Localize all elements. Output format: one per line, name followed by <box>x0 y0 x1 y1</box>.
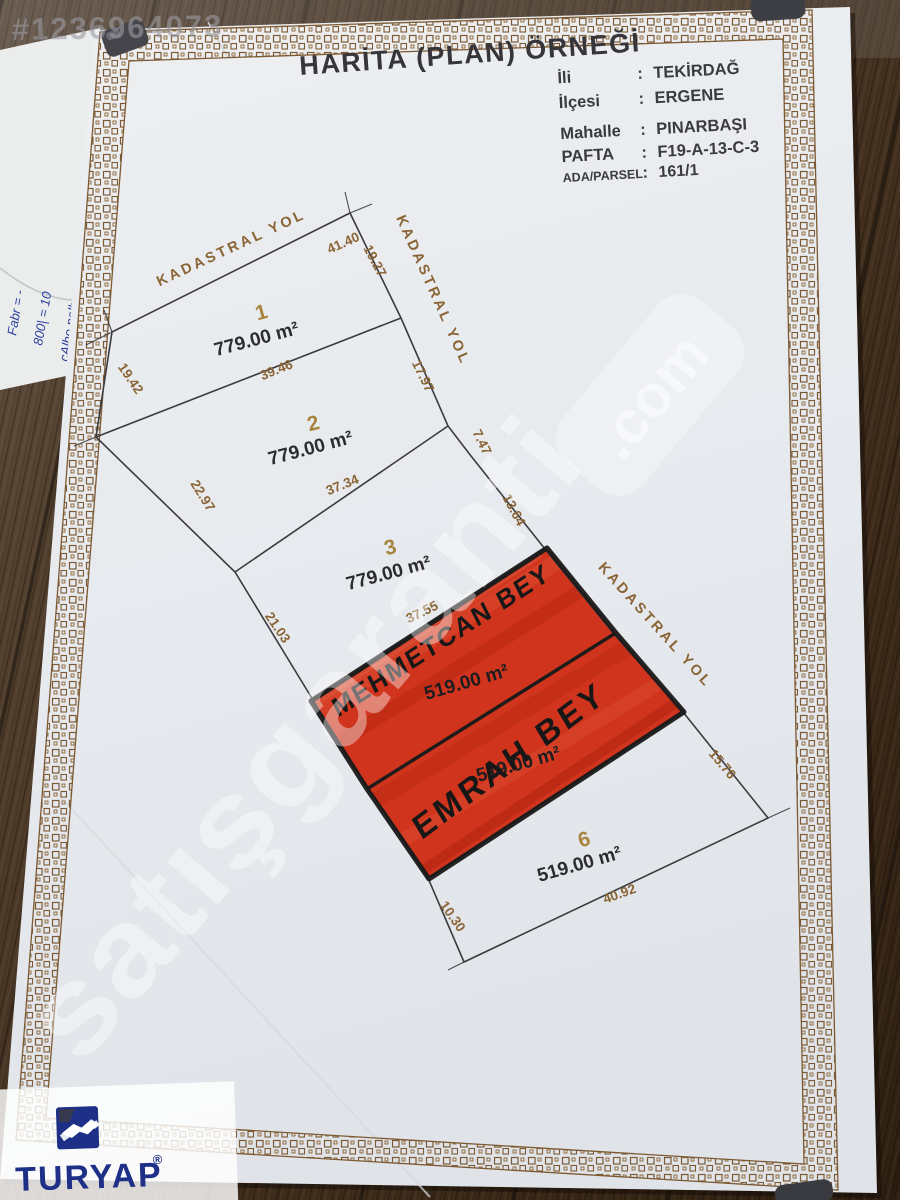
field-sep-2: : <box>638 90 644 108</box>
field-value-ilcesi: ERGENE <box>654 86 725 108</box>
handshake-icon <box>56 1106 100 1149</box>
agency-logo-registered-mark: ® <box>152 1152 163 1167</box>
field-label-pafta: PAFTA <box>561 145 614 166</box>
field-sep-4: : <box>641 144 647 162</box>
field-sep-1: : <box>637 65 643 83</box>
listing-id-watermark: #1236964073 <box>12 8 224 47</box>
field-sep-3: : <box>640 121 646 139</box>
field-value-adaparsel: 161/1 <box>658 162 699 181</box>
cadastral-plan-photo: Fabr = - 800| = 10 çAlho nolbs = 2500 HA… <box>0 0 900 1200</box>
clip-top-right <box>750 0 806 22</box>
agency-logo: TURYAP ® <box>0 1081 238 1200</box>
field-sep-5: : <box>642 164 648 182</box>
field-label-ili: İli <box>557 69 572 88</box>
field-label-ilcesi: İlçesi <box>558 92 600 112</box>
listing-photo: Fabr = - 800| = 10 çAlho nolbs = 2500 HA… <box>0 0 900 1200</box>
agency-logo-text: TURYAP <box>15 1156 164 1199</box>
field-label-mahalle: Mahalle <box>560 122 621 143</box>
